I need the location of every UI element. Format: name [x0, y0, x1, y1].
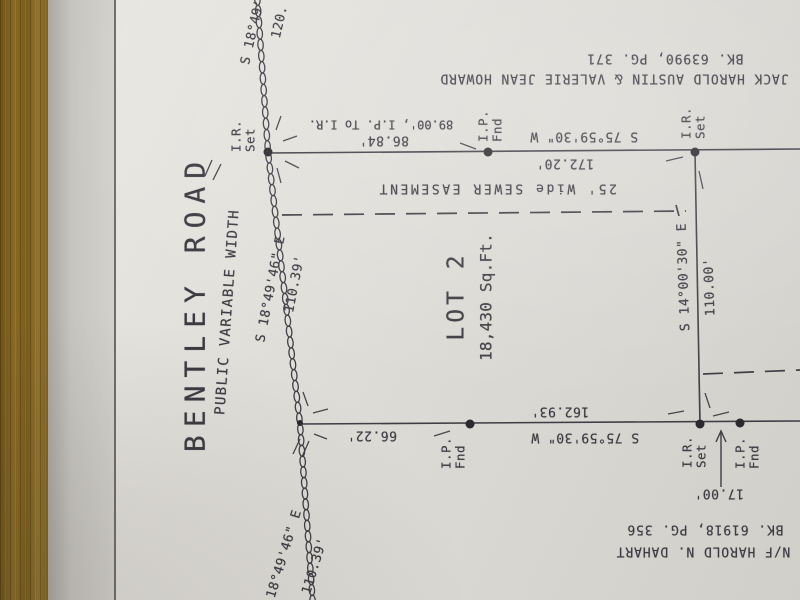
lot-name-label: LOT 2: [451, 251, 464, 340]
monument-label-ip-fnd: I.P. Fnd: [734, 437, 761, 469]
south-adjoiner-owner-label: N/F HAROLD N. DAHART: [616, 545, 791, 558]
sewer-easement-label: 25' Wide SEWER EASEMENT: [377, 182, 617, 195]
east-line-distance-label: 110.00': [702, 258, 717, 317]
south-adjoiner-deed-label: BK. 61918, PG. 356: [626, 523, 783, 536]
north-boundary-line: [268, 149, 800, 153]
south-boundary-line: [300, 421, 800, 424]
sewer-easement-line: [282, 211, 686, 215]
lot-area-label: 18,430 Sq.Ft.: [480, 233, 493, 361]
monument-label-ir-set: I.R. Set: [230, 120, 257, 152]
monument-label-ip-fnd: I.P. Fnd: [477, 110, 504, 142]
north-adjoiner-deed-label: BK. 63990, PG. 371: [586, 52, 743, 65]
north-adjoiner-owner-label: JACK HAROLD AUSTIN & VALERIE JEAN HOWARD: [439, 72, 788, 85]
road-name-label: BENTLEY ROAD: [189, 154, 202, 452]
monument-label-ir-set: I.R. Set: [681, 436, 708, 468]
marker-line1: I.R.: [680, 107, 694, 139]
offset-distance-label: 17.00': [694, 487, 744, 500]
marker-line2: Set: [694, 436, 708, 468]
plat-photo-scene: BENTLEY ROAD PUBLIC VARIABLE WIDTH S 18°…: [0, 0, 800, 600]
iron-rod-set-dot: [691, 148, 700, 157]
north-line-distance2-label: 172.20': [536, 157, 594, 170]
marker-line1: I.P.: [734, 437, 748, 469]
corner-dot: [297, 420, 303, 426]
marker-line2: Set: [693, 107, 707, 139]
offset-arrow: [716, 431, 726, 487]
north-line-note-label: 89.00', I.P. To I.R.: [309, 118, 454, 131]
east-boundary-line: [695, 152, 700, 424]
easement-dashed-lines: [282, 205, 800, 374]
marker-line2: Fnd: [453, 437, 467, 469]
marker-line1: I.R.: [681, 436, 695, 468]
south-line-distance2-label: 66.22': [347, 429, 397, 442]
iron-pipe-found-dot: [484, 148, 493, 157]
iron-pipe-found-dot: [736, 419, 745, 428]
south-line-distance1-label: 162.93': [531, 405, 589, 418]
marker-line2: Set: [243, 120, 257, 152]
easement-end-tick: [676, 205, 679, 216]
iron-rod-set-dot: [696, 420, 705, 429]
marker-line1: I.R.: [230, 120, 244, 152]
iron-rod-set-dot: [264, 148, 273, 157]
southeast-dashed-line: [703, 370, 800, 374]
monument-label-ip-fnd: I.P. Fnd: [440, 437, 467, 469]
north-line-distance1-label: 86.84': [359, 134, 409, 147]
north-line-bearing-label: S 75°59'30" W: [530, 130, 638, 143]
marker-line2: Fnd: [747, 437, 761, 469]
marker-line1: I.P.: [477, 110, 491, 142]
marker-line2: Fnd: [490, 110, 504, 142]
monument-label-ir-set: I.R. Set: [680, 107, 707, 139]
marker-line1: I.P.: [440, 437, 454, 469]
east-line-bearing-label: S 14°00'30" E: [676, 223, 693, 332]
iron-pipe-found-dot: [466, 420, 475, 429]
south-line-bearing-label: S 75°59'30" W: [531, 431, 639, 444]
